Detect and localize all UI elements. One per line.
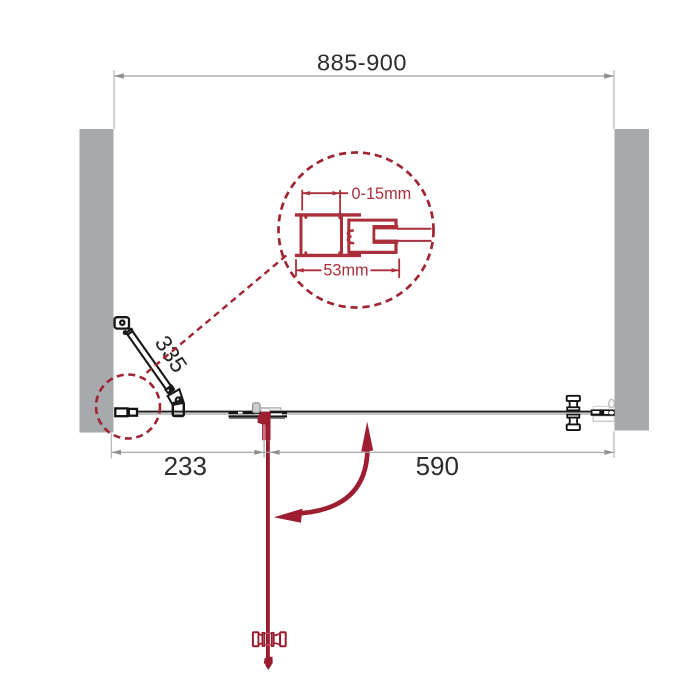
- svg-text:0-15mm: 0-15mm: [352, 185, 412, 203]
- svg-text:53mm: 53mm: [323, 261, 368, 279]
- svg-text:885-900: 885-900: [317, 49, 407, 75]
- svg-text:590: 590: [416, 451, 459, 481]
- svg-text:233: 233: [164, 451, 207, 481]
